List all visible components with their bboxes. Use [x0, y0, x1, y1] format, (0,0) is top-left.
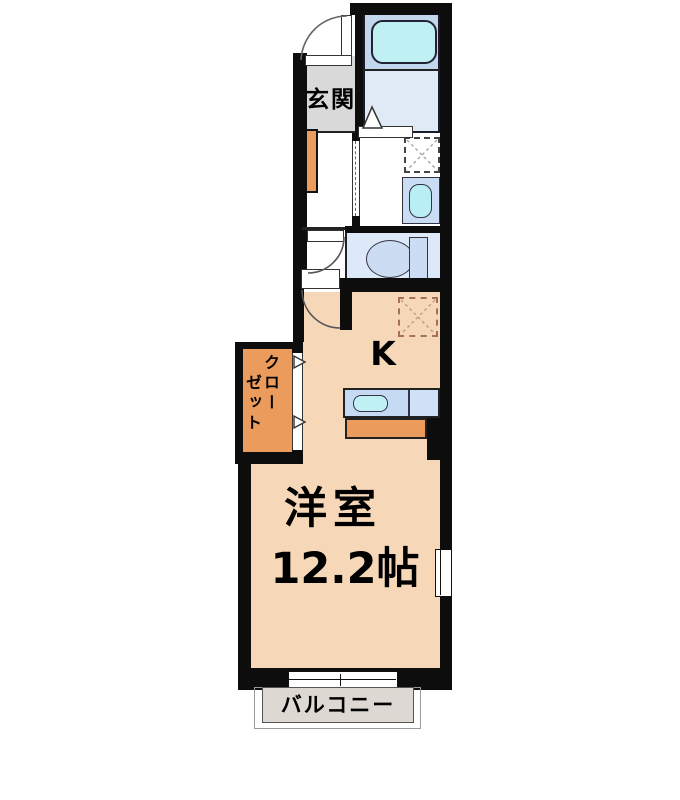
washing-machine-space: [404, 137, 440, 173]
wall-toilet-left-edge: [345, 233, 347, 280]
floor-plan: 玄関 K クロー ゼット 洋室 12.2帖 バルコニー: [0, 0, 680, 800]
closet-folding-door: [292, 353, 303, 450]
bathtub: [371, 20, 437, 64]
wall-protrusion-kitchen: [427, 418, 452, 460]
kitchen-door-leaf: [301, 269, 340, 289]
wall-left-lower: [238, 462, 251, 690]
toilet-door-leaf: [307, 230, 344, 242]
bath-zone-divider: [363, 69, 440, 71]
kitchen-sink: [353, 395, 388, 412]
room-size-label: 12.2帖: [260, 542, 430, 596]
toilet-bowl: [366, 240, 414, 278]
window-balcony-latch: [340, 674, 341, 686]
laundry-sliding-door: [352, 141, 360, 216]
wall-top: [350, 3, 452, 15]
bath-folding-door: [358, 126, 413, 138]
room-name-label: 洋室: [268, 484, 398, 534]
wall-washroom-stub-bottom: [352, 216, 360, 226]
closet-label-col1: クロー: [262, 354, 278, 454]
wash-basin-bowl: [409, 184, 432, 218]
kitchen-label: K: [362, 334, 404, 374]
refrigerator-space: [398, 297, 438, 337]
entrance-label: 玄関: [301, 84, 361, 116]
kitchen-counter-right: [410, 390, 438, 416]
balcony-label: バルコニー: [262, 690, 414, 720]
wall-washroom-toilet-divider: [345, 226, 440, 233]
kitchen-counter-divider: [408, 390, 410, 416]
window-balcony-rail: [289, 679, 396, 680]
toilet-tank: [409, 237, 428, 281]
wall-kitchen-top: [340, 278, 452, 292]
laundry-sliding-door-track: [355, 141, 356, 216]
entrance-threshold: [305, 55, 352, 66]
window-side: [435, 549, 452, 597]
kitchen-counter: [343, 388, 440, 418]
toilet-door-arc: [308, 237, 344, 273]
kitchen-cabinet: [345, 418, 427, 439]
wall-kitchen-door-stub: [340, 278, 352, 330]
window-side-sash: [440, 550, 441, 595]
closet-label-col2: ゼット: [244, 374, 260, 474]
